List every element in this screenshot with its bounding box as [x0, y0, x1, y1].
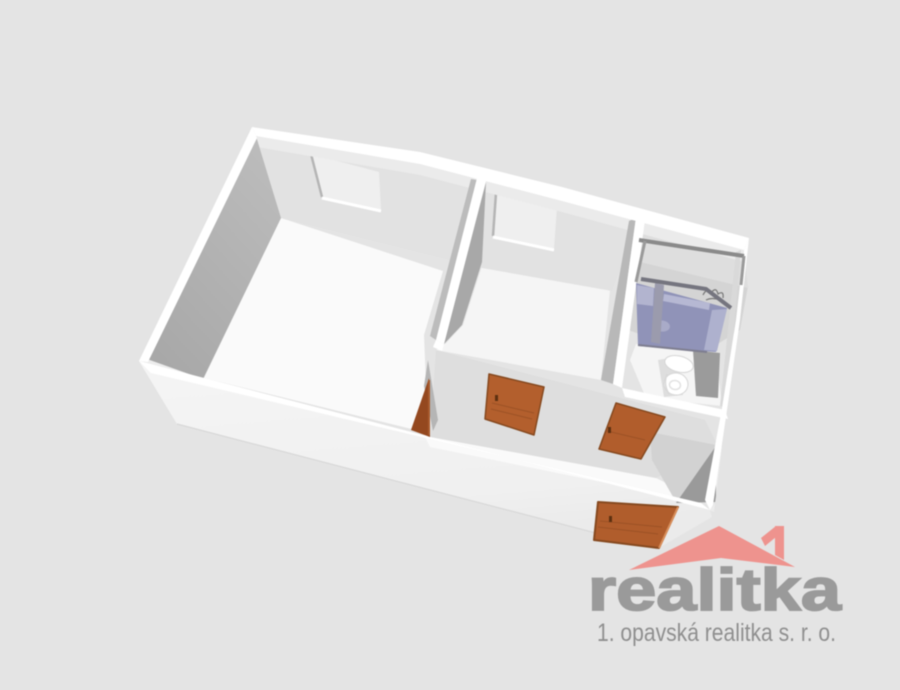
svg-text:realitka: realitka: [588, 557, 842, 623]
svg-text:1. opavská realitka s. r. o.: 1. opavská realitka s. r. o.: [597, 619, 836, 647]
